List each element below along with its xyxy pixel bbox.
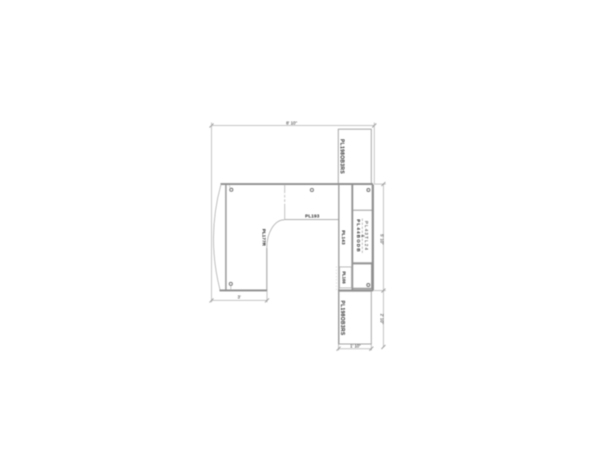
svg-text:3': 3' (238, 294, 241, 299)
svg-text:8' 10": 8' 10" (286, 121, 297, 126)
svg-text:&: & (360, 235, 365, 238)
svg-text:PL193: PL193 (305, 214, 320, 219)
svg-text:PL198OB3RS: PL198OB3RS (339, 301, 345, 336)
svg-text:5' 10": 5' 10" (380, 234, 385, 245)
svg-text:2' 10": 2' 10" (379, 314, 384, 325)
svg-text:PL166: PL166 (341, 271, 346, 284)
svg-text:PL198OB3RS: PL198OB3RS (338, 139, 344, 174)
svg-text:PL143: PL143 (341, 230, 346, 245)
svg-text:1' 10": 1' 10" (350, 343, 361, 348)
svg-text:PL177R: PL177R (262, 229, 267, 247)
